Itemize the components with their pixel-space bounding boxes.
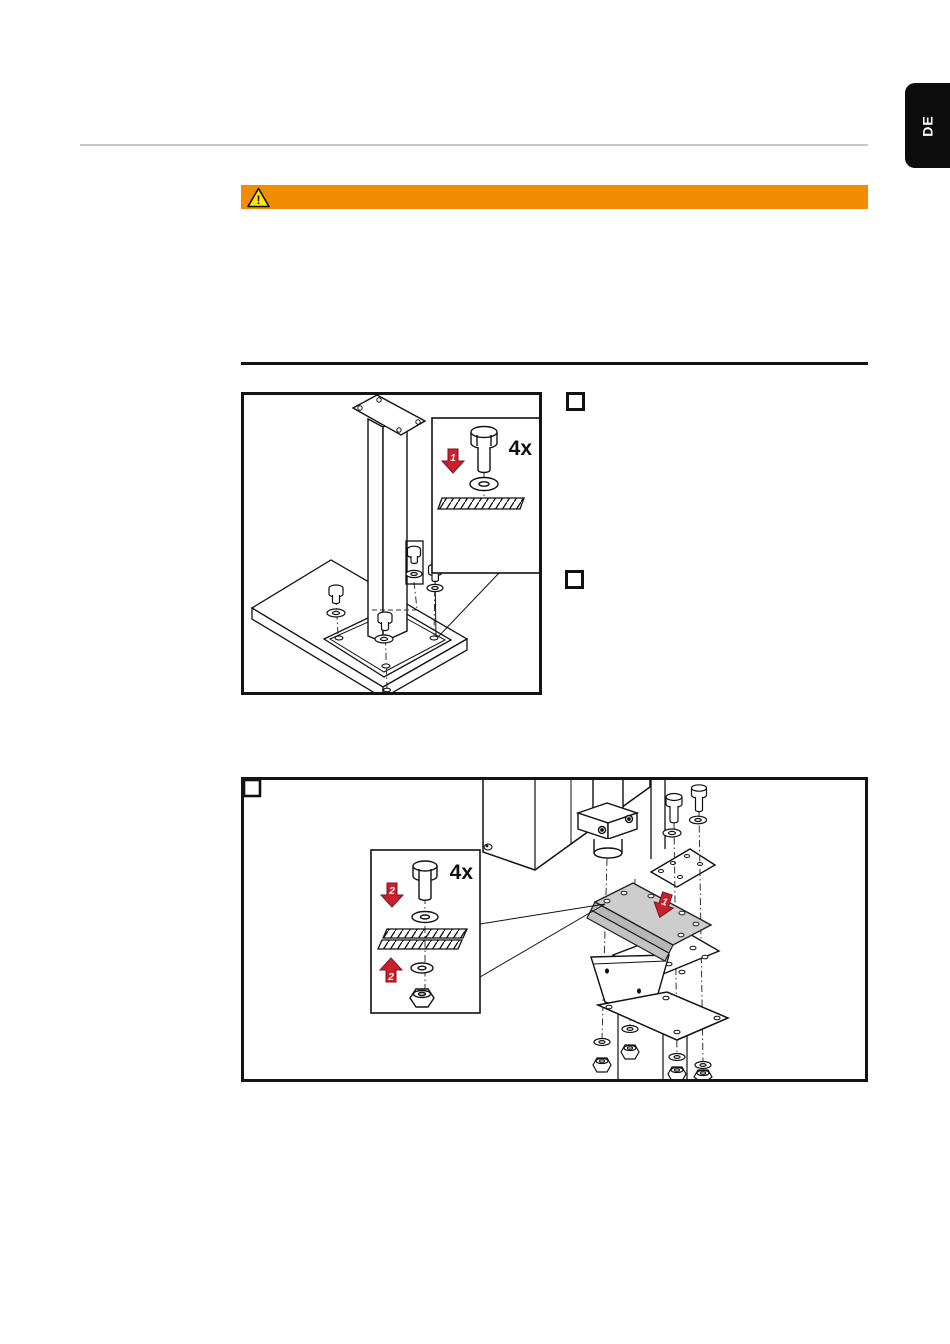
language-tab-label: DE	[919, 115, 935, 136]
warning-exclamation: !	[257, 193, 261, 207]
step-number: 1	[450, 453, 456, 464]
hatched-base-bar	[438, 498, 524, 509]
hex-bolt-icon	[690, 785, 707, 824]
warning-banner: !	[241, 185, 868, 209]
anchor-bolt	[406, 541, 423, 584]
header-divider	[80, 144, 868, 146]
quantity-label: 4x	[509, 437, 533, 460]
figure-step-box	[244, 780, 260, 796]
step-number: 2	[388, 886, 395, 897]
figure-post-mounting: 4x 1	[241, 392, 542, 695]
hex-nut-icon	[410, 989, 434, 1007]
manual-page: DE !	[0, 0, 950, 1344]
washer-icon	[470, 478, 498, 491]
warning-triangle-icon: !	[247, 187, 270, 208]
mounting-post	[368, 415, 407, 642]
washer-icon	[412, 912, 438, 923]
quantity-label: 4x	[450, 861, 474, 884]
washers-and-nuts	[593, 1026, 712, 1082]
section-divider	[241, 362, 868, 365]
hex-bolt-icon	[663, 794, 682, 838]
figure-exploded-assembly: 1	[241, 777, 868, 1082]
step-checkbox[interactable]	[566, 392, 585, 411]
lock-washer-icon	[411, 963, 433, 973]
inset-detail-box: 4x	[371, 850, 480, 1013]
drive-shaft-lower	[594, 839, 622, 858]
inset-leader-lines	[480, 904, 605, 977]
step-number: 2	[387, 972, 394, 983]
step-checkbox[interactable]	[565, 570, 584, 589]
language-tab-de: DE	[905, 83, 950, 168]
housing-flange-plate	[651, 849, 715, 887]
inset-detail-box: 4x 1	[432, 418, 540, 573]
post-top-plate	[353, 395, 425, 435]
